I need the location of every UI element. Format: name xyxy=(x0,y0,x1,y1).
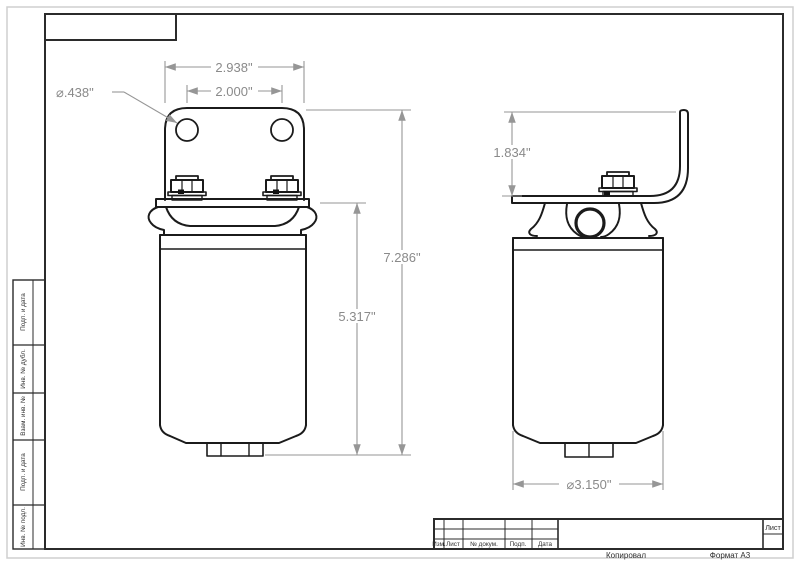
top-left-stamp-box xyxy=(45,14,176,40)
left-attribute-labels: Подп. и дата Инв. № дубл. Взам. инв. № П… xyxy=(19,293,27,547)
dim-body-diameter-label: ⌀3.150" xyxy=(567,477,612,492)
body-bottom-taper xyxy=(513,425,663,443)
drawing-canvas: Подп. и дата Инв. № дубл. Взам. инв. № П… xyxy=(0,0,800,565)
dim-overall-height: 7.286" xyxy=(265,110,427,455)
dim-bracket-height: 1.834" xyxy=(488,112,676,196)
bracket-plate-front xyxy=(165,108,304,200)
filter-body-front xyxy=(160,235,306,456)
title-col-izm: Изм. xyxy=(432,541,446,548)
dim-body-height: 5.317" xyxy=(320,203,382,455)
left-attribute-strip xyxy=(13,280,45,549)
outer-page-border xyxy=(7,7,793,558)
dim-bracket-height-label: 1.834" xyxy=(493,145,531,160)
body-bottom-taper xyxy=(160,425,306,443)
head-ear-left xyxy=(149,207,164,235)
title-col-ndokum: № докум. xyxy=(470,541,498,548)
bracket-plate-side xyxy=(512,110,688,203)
head-dome xyxy=(166,207,299,226)
inner-frame xyxy=(45,14,783,549)
strip-label-podp-i-data-2: Подп. и дата xyxy=(20,453,27,491)
bracket-hole-left xyxy=(176,119,198,141)
dim-overall-height-label: 7.286" xyxy=(383,250,421,265)
dim-hole-spacing-label: 2.000" xyxy=(215,84,253,99)
dim-bracket-width-label: 2.938" xyxy=(215,60,253,75)
head-port xyxy=(576,209,604,237)
head-ear-right xyxy=(301,207,316,235)
filter-body-side xyxy=(513,238,663,457)
dim-hole-diameter-label: ⌀.438" xyxy=(56,85,94,100)
front-view xyxy=(149,108,317,456)
footer-copied-label: Копировал xyxy=(606,551,646,560)
drawing-sheet: Подп. и дата Инв. № дубл. Взам. инв. № П… xyxy=(0,0,800,565)
bolt-mark xyxy=(178,190,184,195)
strip-label-podp-i-data-1: Подп. и дата xyxy=(20,293,27,331)
strip-outline xyxy=(13,280,45,549)
filter-head-side xyxy=(529,203,657,237)
dim-body-height-label: 5.317" xyxy=(338,309,376,324)
filter-head-front xyxy=(149,199,317,235)
dim-hole-diameter: ⌀.438" xyxy=(56,85,177,123)
strip-label-inv-dubl: Инв. № дубл. xyxy=(19,349,27,389)
dim-hole-spacing: 2.000" xyxy=(187,84,282,103)
bottom-nub xyxy=(207,443,263,456)
title-block-labels: Изм. Лист № докум. Подп. Дата Лист xyxy=(432,523,781,548)
footer-format-label: Формат А3 xyxy=(710,551,751,560)
dimensions: 2.938" 2.000" ⌀.438" 5.317" xyxy=(56,60,676,492)
strip-label-vzam-inv: Взам. инв. № xyxy=(20,396,27,436)
sheet-frame xyxy=(7,7,793,558)
bolt-front-right xyxy=(263,176,301,200)
side-view xyxy=(512,110,688,457)
bolt-mark xyxy=(273,190,279,195)
head-leg-right-outer xyxy=(641,203,657,236)
strip-label-inv-podl: Инв. № подл. xyxy=(20,507,27,547)
title-col-list: Лист xyxy=(446,541,460,548)
bracket-hole-right xyxy=(271,119,293,141)
bolt-front-left xyxy=(168,176,206,200)
title-col-data: Дата xyxy=(538,541,552,548)
sheet-number-label: Лист xyxy=(765,523,781,532)
head-leg-left-outer xyxy=(529,203,545,236)
bolt-mark xyxy=(604,191,610,196)
bolt-side xyxy=(599,172,637,196)
title-col-podp: Подп. xyxy=(510,541,527,548)
